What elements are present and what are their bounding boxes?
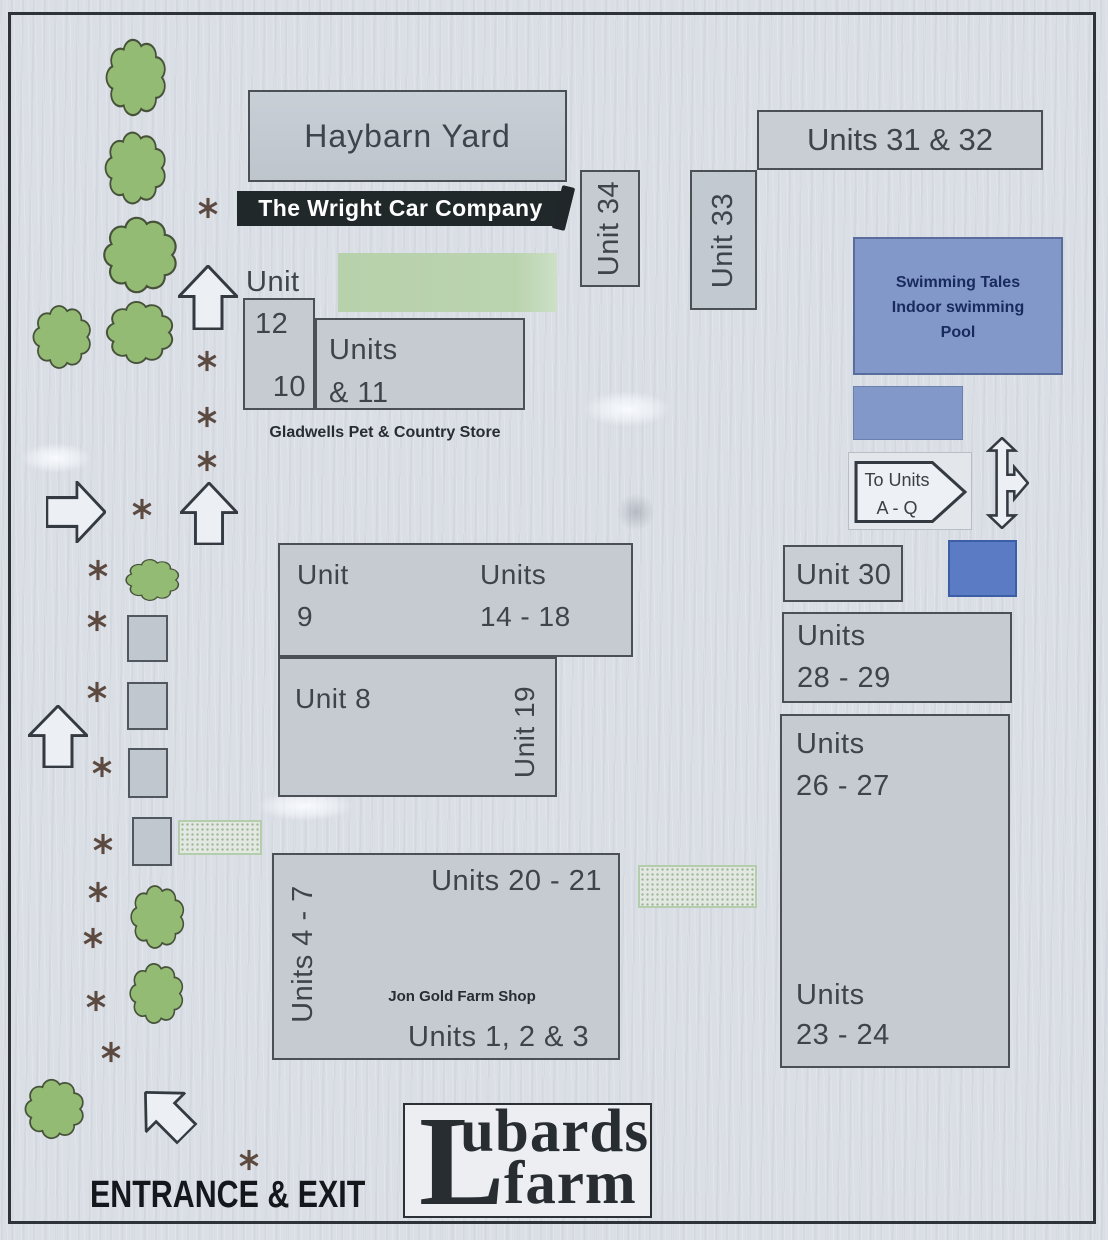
direction-arrow-icon [178,265,238,330]
small-building-square [132,817,172,866]
asterisk-icon [238,1149,260,1171]
entrance-exit-label: ENTRANCE & EXIT [90,1174,365,1217]
units-26-27-line2: 26 - 27 [796,770,890,803]
direction-arrow-icon [46,481,106,543]
building-units-26-27-23-24: Units 26 - 27 Units 23 - 24 [780,714,1010,1068]
unit-30-label: Unit 30 [796,559,891,592]
tree-icon [100,213,182,297]
asterisk-icon [87,559,109,581]
asterisk-icon [196,350,218,372]
wright-car-company-banner: The Wright Car Company [237,191,564,226]
pool-label-line2: Indoor swimming [855,296,1061,321]
units-23-24-line1: Units [796,979,865,1012]
direction-arrow-icon [28,705,88,768]
asterisk-icon [82,927,104,949]
units-31-32-label: Units 31 & 32 [807,122,993,158]
blue-building-small [853,386,963,440]
small-building-square [127,615,168,662]
building-unit-30: Unit 30 [783,545,903,602]
photo-artifact [610,486,662,538]
unit-9-line1: Unit [297,559,349,591]
gravel-area [638,865,757,908]
tree-icon [127,960,187,1027]
tree-icon [22,1076,88,1142]
units-14-18-line2: 14 - 18 [480,601,571,633]
haybarn-yard-label: Haybarn Yard [304,118,510,155]
to-units-line1: To Units [855,470,939,491]
unit-19-label: Unit 19 [509,684,541,780]
unit-10-number: 10 [273,371,306,404]
tree-icon [128,882,188,952]
unit-8-label: Unit 8 [295,683,371,715]
photo-artifact [583,391,671,427]
wright-car-company-label: The Wright Car Company [258,195,542,222]
asterisk-icon [92,833,114,855]
small-building-square [127,682,168,730]
asterisk-icon [85,990,107,1012]
unit-12-number: 12 [255,308,288,341]
pool-label-line3: Pool [855,321,1061,346]
pool-label-line1: Swimming Tales [855,271,1061,296]
gravel-area [178,820,262,855]
tree-icon [102,128,170,208]
building-units-28-29: Units 28 - 29 [782,612,1012,703]
building-unit-34: Unit 34 [580,170,640,287]
building-unit-33: Unit 33 [690,170,757,310]
building-units-10-11: Units & 11 [315,318,525,410]
building-units-4-7-20-21-1-2-3: Units 20 - 21 Units 4 - 7 Jon Gold Farm … [272,853,620,1060]
direction-arrow-icon [180,482,238,545]
jon-gold-farm-shop-label: Jon Gold Farm Shop [327,988,597,1005]
units-23-24-line2: 23 - 24 [796,1019,890,1052]
to-units-line2: A - Q [855,498,939,519]
unit-33-label: Unit 33 [707,192,740,287]
unit-34-label: Unit 34 [594,181,627,276]
asterisk-icon [100,1041,122,1063]
asterisk-icon [131,498,153,520]
tree-icon [103,298,178,367]
asterisk-icon [196,406,218,428]
tree-icon [30,302,95,372]
asterisk-icon [86,681,108,703]
to-units-sign: To Units A - Q [848,452,972,530]
asterisk-icon [196,450,218,472]
blue-building-square [948,540,1017,597]
units-10-11-line2: & 11 [329,377,389,410]
tree-icon [123,557,183,603]
units-28-29-line2: 28 - 29 [797,662,891,695]
building-unit-9-units-14-18: Unit 9 Units 14 - 18 [278,543,633,657]
logo-word-farm: farm [504,1149,637,1219]
small-building-square [128,748,168,798]
unit-9-line2: 9 [297,601,313,633]
tree-icon [103,35,170,120]
building-swimming-pool: Swimming Tales Indoor swimming Pool [853,237,1063,375]
units-1-2-3-label: Units 1, 2 & 3 [408,1021,589,1054]
farm-site-map: Haybarn Yard The Wright Car Company Unit… [0,0,1108,1240]
building-units-31-32: Units 31 & 32 [757,110,1043,170]
green-area [338,253,557,312]
units-28-29-line1: Units [797,620,866,653]
direction-arrow-icon [125,1072,207,1154]
units-20-21-label: Units 20 - 21 [431,865,602,898]
lubards-farm-logo: L ubards farm [403,1103,652,1218]
units-14-18-line1: Units [480,559,546,591]
units-4-7-label: Units 4 - 7 [287,874,317,1034]
crossroads-arrow-icon [975,437,1029,529]
building-unit-12-10: 12 10 [243,298,315,410]
units-26-27-line1: Units [796,728,865,761]
asterisk-icon [197,197,219,219]
units-10-11-line1: Units [329,334,398,367]
asterisk-icon [86,610,108,632]
unit-12-title: Unit [246,266,300,299]
asterisk-icon [91,756,113,778]
gladwells-store-label: Gladwells Pet & Country Store [262,424,508,442]
building-haybarn-yard: Haybarn Yard [248,90,567,182]
asterisk-icon [87,881,109,903]
photo-artifact [20,443,92,473]
building-unit-8-19: Unit 8 Unit 19 [278,657,557,797]
